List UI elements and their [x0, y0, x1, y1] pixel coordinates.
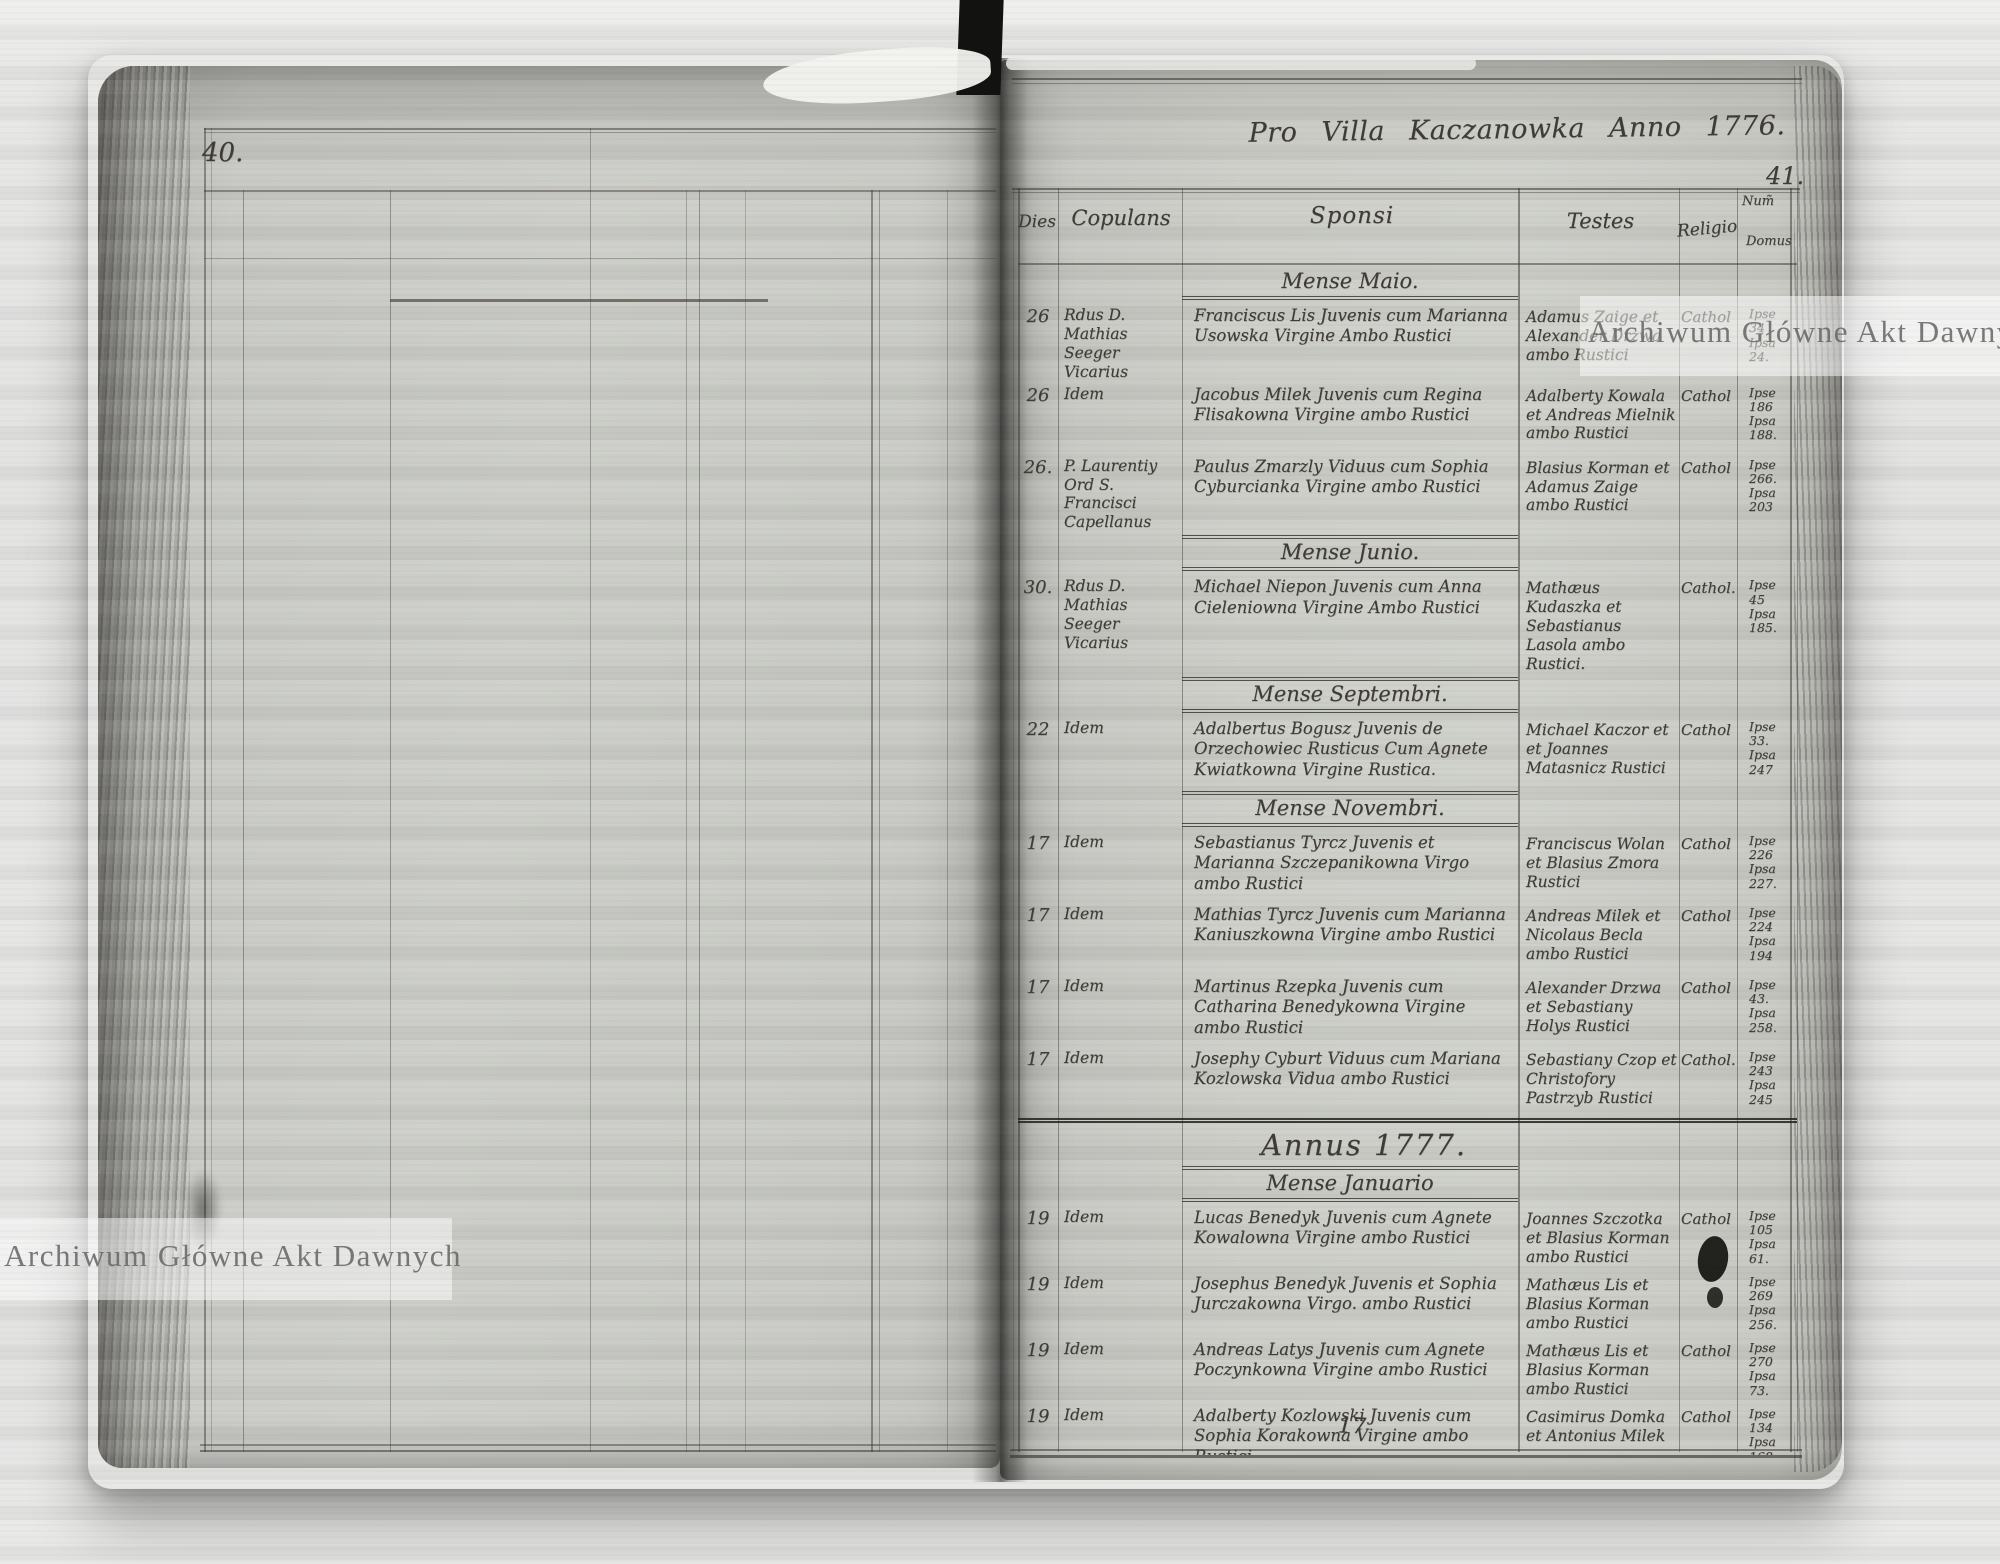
rule-line: [200, 1444, 996, 1446]
section-header-year: Annus 1777.: [1018, 1118, 1797, 1163]
table-row: 17IdemMartinus Rzepka Juvenis cum Cathar…: [1018, 974, 1797, 1046]
section-title: Mense Maio.: [1182, 268, 1518, 300]
row-num: Ipse 269 Ipsa 256.: [1737, 1273, 1797, 1337]
row-sponsi: Paulus Zmarzly Viduus cum Sophia Cyburci…: [1182, 456, 1518, 533]
column-header-testes: Testes: [1522, 209, 1679, 233]
row-sponsi: Mathias Tyrcz Juvenis cum Marianna Kaniu…: [1182, 904, 1518, 974]
row-dies: 30.: [1018, 576, 1058, 674]
watermark-text-top-right: Archiwum Główne Akt Dawnych: [1588, 314, 2000, 350]
row-dies: 17: [1018, 832, 1058, 902]
row-dies: 17: [1018, 976, 1058, 1046]
rule-line: [204, 132, 996, 133]
row-dies: 22: [1018, 718, 1058, 788]
row-sponsi: Franciscus Lis Juvenis cum Marianna Usow…: [1182, 305, 1518, 382]
row-dies: 26: [1018, 384, 1058, 454]
scanned-register-page: 40. 41. Pro Villa Kaczanowka Anno 1776. …: [0, 0, 2000, 1564]
rule-line: [686, 190, 687, 1452]
rule-line: [390, 299, 768, 302]
row-dies: 17: [1018, 1048, 1058, 1118]
row-dies: 19: [1018, 1273, 1058, 1337]
rule-line: [1012, 192, 1800, 193]
row-religio: Cathol.: [1679, 576, 1737, 674]
rule-line: [879, 190, 880, 1452]
table-row: 17IdemMathias Tyrcz Juvenis cum Marianna…: [1018, 902, 1797, 974]
row-testes: Joannes Szczotka et Blasius Korman ambo …: [1518, 1207, 1679, 1271]
row-testes: Alexander Drzwa et Sebastiany Holys Rust…: [1518, 976, 1679, 1046]
row-dies: 19: [1018, 1405, 1058, 1455]
row-dies: 19: [1018, 1339, 1058, 1403]
row-religio: Cathol: [1679, 718, 1737, 788]
table-row: 26IdemJacobus Milek Juvenis cum Regina F…: [1018, 382, 1797, 454]
row-religio: Cathol: [1679, 832, 1737, 902]
row-religio: [1679, 1273, 1737, 1337]
row-sponsi: Josephy Cyburt Viduus cum Mariana Kozlow…: [1182, 1048, 1518, 1118]
row-copulans: Idem: [1058, 832, 1182, 902]
watermark-text-bottom-left: Archiwum Główne Akt Dawnych: [4, 1238, 462, 1274]
row-sponsi: Jacobus Milek Juvenis cum Regina Flisako…: [1182, 384, 1518, 454]
rule-line: [204, 128, 996, 130]
column-header-num-domus: Num̃: [1742, 194, 1798, 209]
row-religio: Cathol: [1679, 976, 1737, 1046]
row-copulans: Idem: [1058, 1207, 1182, 1271]
rule-line: [1012, 188, 1800, 190]
row-testes: Blasius Korman et Adamus Zaige ambo Rust…: [1518, 456, 1679, 533]
row-religio: Cathol: [1679, 1339, 1737, 1403]
row-num: Ipse 224 Ipsa 194: [1737, 904, 1797, 974]
rule-line: [204, 258, 996, 259]
row-testes: Andreas Milek et Nicolaus Becla ambo Rus…: [1518, 904, 1679, 974]
rule-line: [1012, 78, 1802, 80]
table-row: 17IdemSebastianus Tyrcz Juvenis et Maria…: [1018, 830, 1797, 902]
rule-line: [204, 190, 996, 192]
row-copulans: Idem: [1058, 976, 1182, 1046]
row-copulans: P. Laurentiy Ord S. Francisci Capellanus: [1058, 456, 1182, 533]
row-religio: Cathol: [1679, 384, 1737, 454]
row-sponsi: Josephus Benedyk Juvenis et Sophia Jurcz…: [1182, 1273, 1518, 1337]
row-religio: Cathol: [1679, 904, 1737, 974]
page-number-right: 41.: [1766, 162, 1804, 190]
row-sponsi: Martinus Rzepka Juvenis cum Catharina Be…: [1182, 976, 1518, 1046]
row-testes: Sebastiany Czop et Christofory Pastrzyb …: [1518, 1048, 1679, 1118]
row-num: Ipse 270 Ipsa 73.: [1737, 1339, 1797, 1403]
rule-line: [1010, 1455, 1802, 1458]
section-header-month: Mense Septembri.: [1018, 674, 1797, 716]
row-num: Ipse 226 Ipsa 227.: [1737, 832, 1797, 902]
section-header-month: Mense Junio.: [1018, 532, 1797, 574]
row-testes: Mathæus Lis et Blasius Korman ambo Rusti…: [1518, 1273, 1679, 1337]
row-dies: 26.: [1018, 456, 1058, 533]
rule-line: [871, 190, 873, 1452]
row-copulans: Idem: [1058, 1405, 1182, 1455]
page-number-left: 40.: [202, 138, 243, 168]
row-copulans: Idem: [1058, 1339, 1182, 1403]
section-title: Annus 1777.: [1196, 1128, 1532, 1162]
table-row: 22IdemAdalbertus Bogusz Juvenis de Orzec…: [1018, 716, 1797, 788]
table-row: 19IdemJosephus Benedyk Juvenis et Sophia…: [1018, 1271, 1797, 1337]
row-sponsi: Adalbertus Bogusz Juvenis de Orzechowiec…: [1182, 718, 1518, 788]
row-num: Ipse 186 Ipsa 188.: [1737, 384, 1797, 454]
row-copulans: Idem: [1058, 904, 1182, 974]
row-dies: 26: [1018, 305, 1058, 382]
row-sponsi: Andreas Latys Juvenis cum Agnete Poczynk…: [1182, 1339, 1518, 1403]
row-religio: Cathol.: [1679, 1048, 1737, 1118]
rule-line: [1012, 83, 1802, 84]
table-row: 19IdemAdalberty Kozlowski Juvenis cum So…: [1018, 1403, 1797, 1455]
row-num: Ipse 43. Ipsa 258.: [1737, 976, 1797, 1046]
rule-line: [1797, 188, 1798, 1452]
rule-line: [590, 128, 591, 1452]
table-row: 17IdemJosephy Cyburt Viduus cum Mariana …: [1018, 1046, 1797, 1118]
section-title: Mense Novembri.: [1182, 791, 1518, 827]
section-title: Mense Januario: [1182, 1166, 1518, 1202]
table-row: 26.P. Laurentiy Ord S. Francisci Capella…: [1018, 454, 1797, 533]
table-row: 19IdemLucas Benedyk Juvenis cum Agnete K…: [1018, 1205, 1797, 1271]
rule-line: [1013, 188, 1014, 1452]
row-num: Ipse 243 Ipsa 245: [1737, 1048, 1797, 1118]
section-title: Mense Junio.: [1182, 535, 1518, 571]
row-testes: Franciscus Wolan et Blasius Zmora Rustic…: [1518, 832, 1679, 902]
row-copulans: Idem: [1058, 718, 1182, 788]
row-copulans: Idem: [1058, 384, 1182, 454]
bottom-page-mark: 17: [1337, 1413, 1366, 1439]
row-dies: 19: [1018, 1207, 1058, 1271]
row-sponsi: Lucas Benedyk Juvenis cum Agnete Kowalow…: [1182, 1207, 1518, 1271]
row-sponsi: Michael Niepon Juvenis cum Anna Cielenio…: [1182, 576, 1518, 674]
rule-line: [200, 1450, 996, 1452]
row-num: Ipse 266. Ipsa 203: [1737, 456, 1797, 533]
row-num: Ipse 45 Ipsa 185.: [1737, 576, 1797, 674]
row-num: Ipse 33. Ipsa 247: [1737, 718, 1797, 788]
row-testes: Mathæus Kudaszka et Sebastianus Lasola a…: [1518, 576, 1679, 674]
row-dies: 17: [1018, 904, 1058, 974]
table-row: 30.Rdus D. Mathias Seeger VicariusMichae…: [1018, 574, 1797, 674]
row-testes: Michael Kaczor et et Joannes Matasnicz R…: [1518, 718, 1679, 788]
row-num: Ipse 105 Ipsa 61.: [1737, 1207, 1797, 1271]
row-sponsi: Sebastianus Tyrcz Juvenis et Marianna Sz…: [1182, 832, 1518, 902]
page-top-edge-highlight: [1006, 57, 1476, 70]
row-copulans: Rdus D. Mathias Seeger Vicarius: [1058, 576, 1182, 674]
row-copulans: Idem: [1058, 1273, 1182, 1337]
column-header-num-domus-line2: Domus: [1746, 234, 1802, 249]
column-header-dies: Dies: [1016, 212, 1058, 232]
row-religio: Cathol: [1679, 1405, 1737, 1455]
row-copulans: Rdus D. Mathias Seeger Vicarius: [1058, 305, 1182, 382]
row-testes: Casimirus Domka et Antonius Milek: [1518, 1405, 1679, 1455]
section-header-month: Mense Novembri.: [1018, 788, 1797, 830]
section-title: Mense Septembri.: [1182, 677, 1518, 713]
table-row: 19IdemAndreas Latys Juvenis cum Agnete P…: [1018, 1337, 1797, 1403]
rule-line: [699, 190, 700, 1452]
rule-line: [745, 190, 746, 1452]
row-religio: Cathol: [1679, 456, 1737, 533]
row-num: Ipse 134 Ipsa 168: [1737, 1405, 1797, 1455]
row-testes: Mathæus Lis et Blasius Korman ambo Rusti…: [1518, 1339, 1679, 1403]
records-table-body: Mense Maio.26Rdus D. Mathias Seeger Vica…: [1018, 265, 1797, 1455]
column-header-sponsi: Sponsi: [1186, 203, 1518, 229]
rule-line: [947, 190, 948, 1452]
row-copulans: Idem: [1058, 1048, 1182, 1118]
page-edge-stack-right: [1794, 66, 1842, 1472]
row-testes: Adalberty Kowala et Andreas Mielnik ambo…: [1518, 384, 1679, 454]
column-header-copulans: Copulans: [1060, 206, 1182, 230]
section-header-month: Mense Januario: [1018, 1163, 1797, 1205]
ink-blot-drip: [1707, 1287, 1723, 1308]
